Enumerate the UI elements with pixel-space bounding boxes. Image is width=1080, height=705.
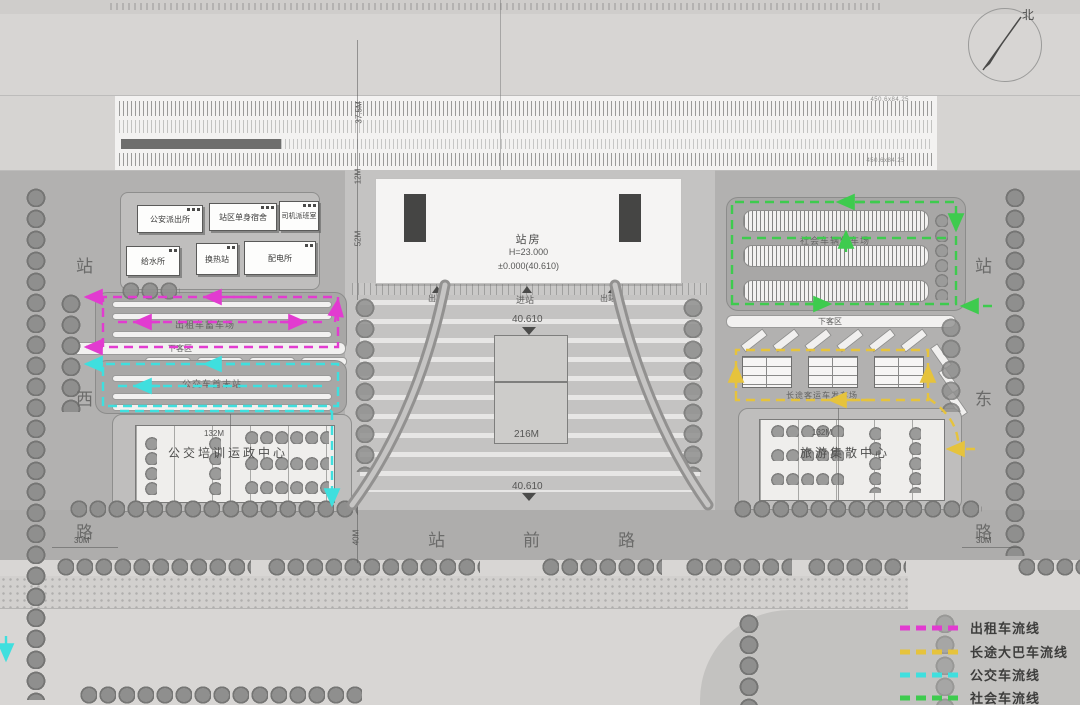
flow-line-overlay [0,0,1080,705]
coach-flow-lines [736,350,975,449]
bus-flow-lines [6,364,338,660]
legend-item-coach: 长途大巴车流线 [898,642,1068,661]
legend-swatch [898,648,960,656]
legend-label: 公交车流线 [970,665,1040,684]
social-flow-lines [732,202,992,306]
legend-item-social: 社会车流线 [898,688,1040,705]
legend-swatch [898,694,960,702]
legend-item-bus: 公交车流线 [898,665,1040,684]
legend-label: 出租车流线 [970,618,1040,637]
taxi-flow-lines [86,297,338,347]
plaza-curved-roads [352,285,708,505]
legend-swatch [898,624,960,632]
legend-item-taxi: 出租车流线 [898,618,1040,637]
legend-label: 长途大巴车流线 [970,642,1068,661]
legend-label: 社会车流线 [970,688,1040,705]
site-plan: 450.6x84.25 450.6x84.25 站房 H=23.000 ±0.0… [0,0,1080,705]
legend-swatch [898,671,960,679]
compass-needle [983,17,1021,70]
